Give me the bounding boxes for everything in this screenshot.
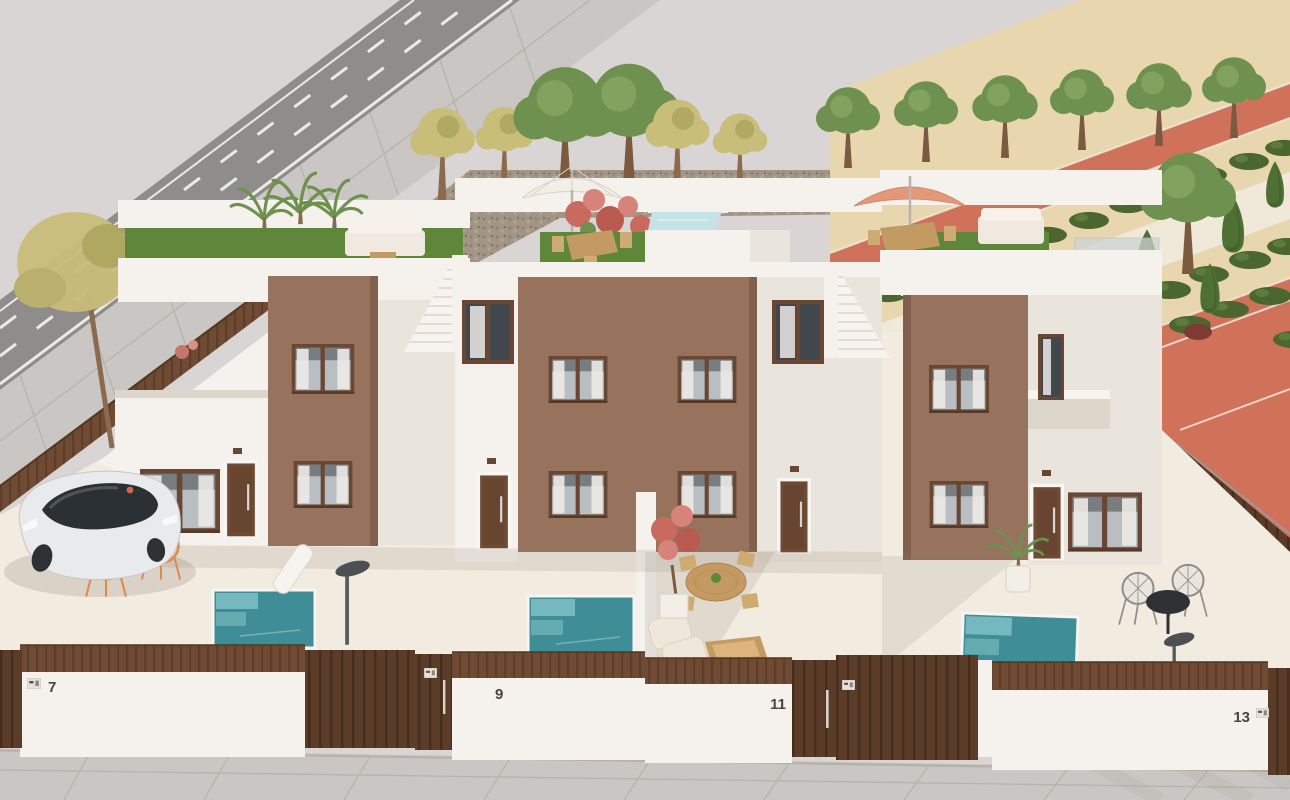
bistro-table: [1146, 590, 1190, 614]
planter-pot: [1006, 566, 1030, 592]
front-door-house11: [777, 478, 811, 554]
dining-chair: [620, 232, 632, 248]
intercom-house11: [842, 680, 855, 690]
window-lower-left-centre: [549, 471, 608, 518]
dining-chair: [552, 236, 564, 252]
wall-house7: [20, 672, 305, 757]
roof-front-parapet: [880, 250, 1162, 295]
dark-red-bush: [1184, 324, 1212, 340]
pool-step: [965, 616, 1012, 636]
front-door-house9: [477, 472, 512, 550]
table-plant: [711, 573, 721, 583]
garage-gate-house13: [836, 655, 978, 760]
front-door-house7: [224, 460, 259, 538]
upper-window-house13: [1038, 334, 1064, 400]
tower-coping: [901, 289, 1030, 296]
bougainvillea: [188, 340, 198, 350]
intercom-house7: [27, 678, 41, 689]
intercom-house9: [424, 668, 437, 678]
window-upper-right-centre: [678, 356, 737, 403]
stair-railing-wall: [824, 262, 838, 358]
garage-gate-house7: [305, 650, 415, 748]
fence-house13: [992, 662, 1268, 690]
gate-pillar: [978, 660, 992, 757]
bougainvillea: [175, 345, 189, 359]
wall-light-house11: [790, 466, 799, 472]
upper-window-house9: [462, 300, 514, 364]
wall-light-house9: [487, 458, 496, 464]
car-interior-detail: [127, 487, 134, 494]
gate-corner: [1268, 668, 1290, 775]
pool-far-coping: [648, 205, 728, 213]
fence-house9: [452, 652, 645, 678]
gate-handle: [443, 680, 445, 714]
pool-step: [216, 593, 258, 609]
pool-step: [216, 612, 246, 626]
brick-coping: [516, 270, 759, 277]
pool-step: [531, 620, 563, 635]
tree-canopy: [14, 268, 66, 308]
window-lower-house7: [294, 461, 353, 508]
front-door-house13: [1030, 484, 1064, 561]
pool-house9: [528, 596, 634, 658]
scene-canvas: 7 9 11 13: [0, 0, 1290, 800]
roof-sofa-set: [345, 220, 425, 261]
wall-light-house7: [233, 448, 242, 454]
house-number-11: 11: [770, 696, 786, 713]
glass-balustrade: [1075, 238, 1159, 251]
front-boundary: 7 9 11 13: [0, 645, 1290, 775]
sofa-cushions: [981, 208, 1041, 221]
window-upper-house13: [929, 365, 989, 413]
fence-house7: [20, 645, 305, 672]
wall-house13: [992, 690, 1268, 770]
gate-handle: [826, 690, 829, 728]
balcony-recess: [1028, 399, 1110, 429]
sofa-cushions: [348, 220, 422, 233]
house-number-7: 7: [48, 679, 56, 696]
wall-house9: [452, 678, 645, 760]
pool-house7: [213, 590, 315, 648]
upper-window-house11: [772, 300, 824, 364]
window-ground-house13: [1068, 492, 1142, 551]
pool-step: [965, 638, 1000, 655]
chair: [741, 593, 759, 609]
pool-step: [531, 599, 575, 616]
roof-sofa-set: [978, 208, 1044, 244]
render-townhouses: 7 9 11 13: [0, 0, 1290, 800]
window-upper-left-centre: [549, 356, 608, 403]
dining-chair: [868, 230, 880, 245]
brick-tower-shade: [370, 276, 378, 546]
brick-tower-shade: [903, 295, 911, 560]
window-lower-house13: [930, 481, 989, 528]
house-number-13: 13: [1233, 709, 1250, 726]
planter-pot: [660, 594, 688, 618]
front-wing-eave-shadow: [115, 390, 268, 398]
wall-light-house13: [1042, 470, 1051, 476]
intercom-house13: [1256, 708, 1269, 718]
tower-coping: [266, 270, 380, 277]
gate-house11: [792, 660, 836, 757]
window-upper-house7: [292, 344, 355, 394]
gate-house7: [0, 650, 22, 748]
car: [19, 471, 180, 579]
fence-house11: [645, 658, 792, 684]
house-number-9: 9: [495, 686, 503, 703]
brick-facade-shade: [749, 277, 757, 552]
dining-chair: [944, 226, 956, 241]
